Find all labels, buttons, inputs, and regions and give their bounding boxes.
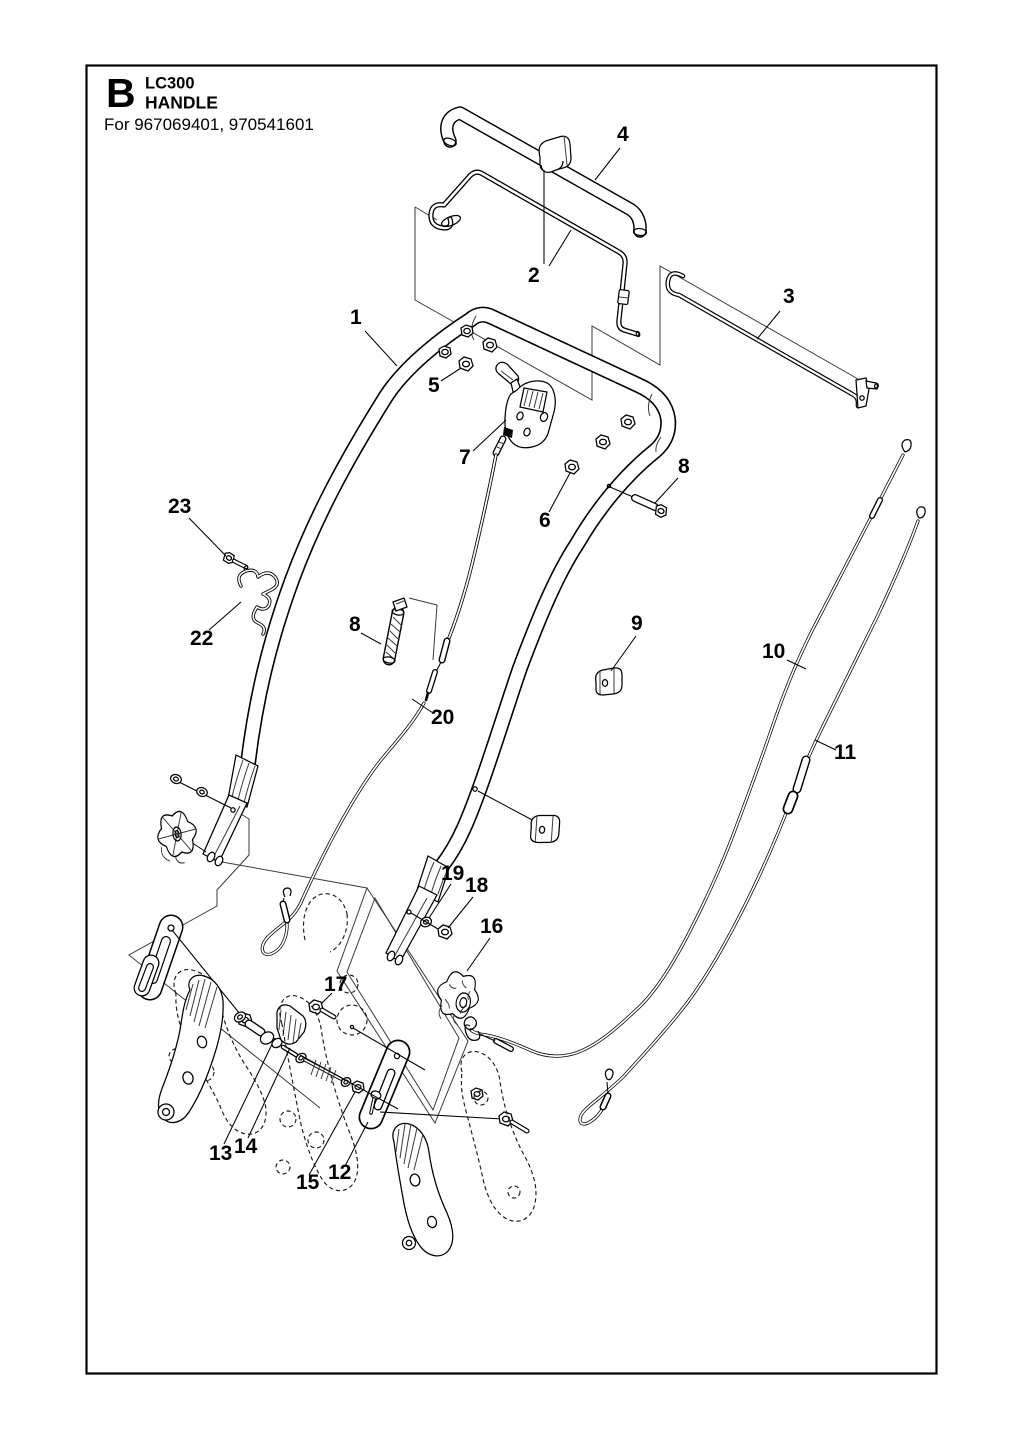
svg-text:16: 16 bbox=[480, 915, 503, 938]
svg-text:11: 11 bbox=[834, 741, 857, 764]
svg-text:10: 10 bbox=[762, 640, 785, 663]
svg-text:2: 2 bbox=[528, 264, 540, 287]
svg-text:9: 9 bbox=[631, 612, 643, 635]
svg-text:For 967069401, 970541601: For 967069401, 970541601 bbox=[104, 115, 314, 134]
svg-text:12: 12 bbox=[328, 1161, 351, 1184]
svg-text:HANDLE: HANDLE bbox=[145, 93, 218, 113]
svg-text:13: 13 bbox=[209, 1142, 232, 1165]
svg-text:5: 5 bbox=[428, 374, 440, 397]
svg-text:19: 19 bbox=[441, 862, 464, 885]
svg-text:8: 8 bbox=[678, 455, 690, 478]
svg-text:1: 1 bbox=[350, 306, 362, 329]
svg-text:8: 8 bbox=[349, 613, 361, 636]
svg-text:20: 20 bbox=[431, 706, 454, 729]
svg-text:15: 15 bbox=[296, 1171, 320, 1194]
svg-text:18: 18 bbox=[465, 874, 489, 897]
svg-text:6: 6 bbox=[539, 509, 551, 532]
svg-text:LC300: LC300 bbox=[145, 75, 195, 93]
svg-text:3: 3 bbox=[783, 285, 795, 308]
svg-text:22: 22 bbox=[190, 627, 213, 650]
svg-text:4: 4 bbox=[617, 123, 629, 146]
svg-text:7: 7 bbox=[459, 446, 471, 469]
svg-text:14: 14 bbox=[234, 1135, 258, 1158]
svg-text:23: 23 bbox=[168, 495, 191, 518]
svg-text:B: B bbox=[106, 70, 136, 116]
